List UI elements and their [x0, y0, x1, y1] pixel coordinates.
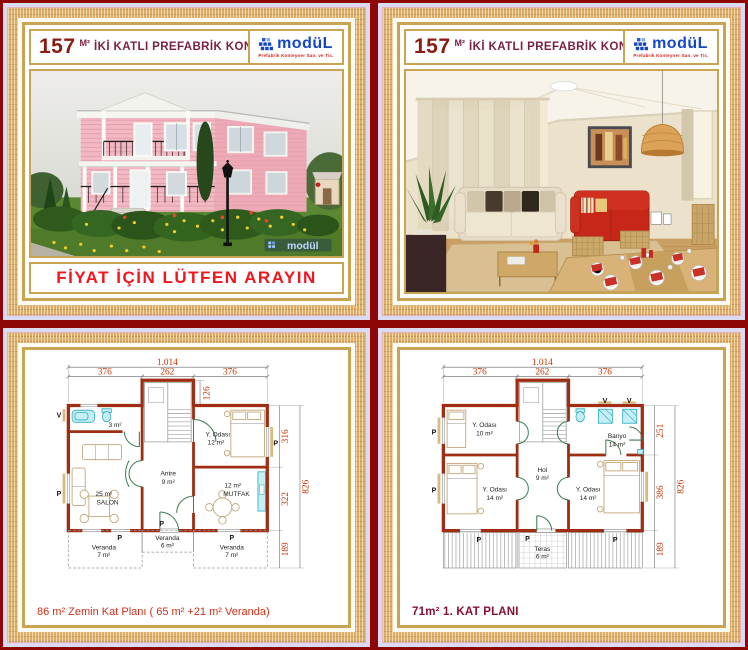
dim-upper: 316 — [281, 429, 291, 443]
house-illustration: modül — [31, 71, 342, 256]
quadrant-top-right: 157 M² İKİ KATLI PREFABRİK KONUT — [378, 3, 745, 320]
label-salon: SALON — [97, 499, 119, 506]
watermark-text: modül — [287, 241, 319, 252]
livingroom-illustration — [406, 71, 717, 292]
dim-veranda: 189 — [656, 542, 666, 556]
mark-p: P — [159, 521, 164, 528]
label-bedroom: Y. Odası — [206, 431, 231, 438]
dim-stair: 126 — [202, 386, 212, 400]
bedroom-furniture — [224, 410, 264, 457]
dim-right: 376 — [598, 368, 612, 378]
bedroom3-furniture — [597, 461, 639, 513]
label-veranda-left-area: 7 m² — [97, 552, 111, 559]
brand-logo: modüL Prefabrik Konteyner San. ve Tic. — [623, 31, 717, 63]
guard-hut — [312, 172, 342, 204]
label-veranda-right-area: 7 m² — [225, 552, 239, 559]
mark-p: P — [117, 535, 122, 542]
dim-total-width: 1.014 — [532, 358, 553, 368]
card-interior: 157 M² İKİ KATLI PREFABRİK KONUT — [397, 22, 726, 301]
dim-lower: 322 — [281, 492, 291, 506]
label-veranda-right: Veranda — [220, 544, 245, 551]
area-number: 157 — [414, 35, 451, 59]
dim-total-width: 1.014 — [157, 358, 178, 368]
right-window — [682, 109, 713, 200]
price-banner: FİYAT İÇİN LÜTFEN ARAYIN — [29, 262, 344, 294]
interior-photo — [404, 69, 719, 294]
label-kitchen: MUTFAK — [223, 491, 250, 498]
right-dimensions: 251 386 189 826 — [644, 405, 686, 568]
side-frames — [651, 212, 671, 224]
area-unit: M² — [455, 38, 466, 48]
mark-p: P — [525, 536, 530, 543]
modul-logo-icon — [634, 38, 649, 51]
header-title: İKİ KATLI PREFABRİK KONUT — [469, 41, 644, 53]
label-antre: Antre — [160, 471, 176, 478]
beige-sofa — [455, 187, 566, 240]
gold-frame: 157 M² İKİ KATLI PREFABRİK KONUT — [7, 7, 366, 316]
header-text: 157 M² İKİ KATLI PREFABRİK KONUT — [406, 31, 623, 63]
mark-v: V — [627, 398, 632, 405]
mark-p: P — [432, 487, 437, 494]
photo-watermark: modül — [264, 239, 331, 252]
card-plan-ground: 1.014 376 262 376 126 31 — [22, 347, 351, 628]
dim-total-height: 826 — [301, 479, 311, 493]
label-bath-area: 14 m² — [609, 442, 626, 449]
area-number: 157 — [39, 35, 76, 59]
prefab-house-poster: { "colors": { "frame_red": "#8e0606", "g… — [0, 0, 748, 650]
dim-veranda: 189 — [281, 542, 291, 556]
label-veranda-left: Veranda — [92, 544, 117, 551]
logo-wordmark: modüL — [652, 36, 708, 52]
gold-frame: 1.014 376 262 376 251 386 189 826 — [382, 332, 741, 643]
salon-furniture — [72, 445, 121, 523]
dim-right: 376 — [223, 368, 237, 378]
mark-v: V — [57, 413, 62, 420]
mark-v: V — [603, 398, 608, 405]
label-wc-area: 3 m² — [109, 422, 123, 429]
exterior-photo: modül — [29, 69, 344, 258]
first-floor-plan: 1.014 376 262 376 251 386 189 826 — [406, 356, 717, 619]
label-hall: Hol — [537, 467, 547, 474]
area-unit: M² — [80, 38, 91, 48]
label-bed2: Y. Odası — [482, 486, 507, 493]
label-bed3-area: 14 m² — [580, 495, 597, 502]
header-text: 157 M² İKİ KATLI PREFABRİK KONUT — [31, 31, 248, 63]
logo-tagline: Prefabrik Konteyner San. ve Tic. — [633, 53, 708, 58]
mark-p: P — [613, 537, 618, 544]
gold-frame: 1.014 376 262 376 126 31 — [7, 332, 366, 643]
dim-mid-band: 386 — [656, 485, 666, 499]
poster-grid: 157 M² İKİ KATLI PREFABRİK KONUT — [0, 0, 748, 650]
label-hall-area: 9 m² — [536, 475, 550, 482]
label-salon-area: 25 m² — [96, 491, 113, 498]
card-header: 157 M² İKİ KATLI PREFABRİK KONUT — [29, 29, 344, 65]
dim-total-height: 826 — [676, 479, 686, 493]
bedroom2-furniture — [447, 463, 483, 513]
mark-p: P — [229, 535, 234, 542]
header-title: İKİ KATLI PREFABRİK KONUT — [94, 41, 269, 53]
label-bath: Banyo — [608, 433, 627, 440]
ground-floor-plan: 1.014 376 262 376 126 31 — [31, 356, 342, 619]
mark-p: P — [57, 491, 62, 498]
dim-left: 376 — [98, 368, 112, 378]
dim-mid: 262 — [535, 368, 549, 378]
quadrant-plan-first: 1.014 376 262 376 251 386 189 826 — [378, 328, 745, 647]
label-veranda-mid-area: 6 m² — [161, 542, 175, 549]
label-antre-area: 9 m² — [162, 479, 176, 486]
wall-painting — [588, 126, 632, 168]
card-exterior: 157 M² İKİ KATLI PREFABRİK KONUT — [22, 22, 351, 301]
bedroom1-furniture — [447, 410, 466, 447]
quadrant-plan-ground: 1.014 376 262 376 126 31 — [3, 328, 370, 647]
staircase — [144, 383, 191, 442]
logo-tagline: Prefabrik Konteyner San. ve Tic. — [258, 53, 333, 58]
dim-left: 376 — [473, 368, 487, 378]
dim-upper: 251 — [656, 423, 666, 437]
label-bed3: Y. Odası — [576, 486, 601, 493]
modul-logo-icon — [259, 38, 274, 51]
card-plan-first: 1.014 376 262 376 251 386 189 826 — [397, 347, 726, 628]
mark-p: P — [432, 429, 437, 436]
wc-fixtures — [72, 409, 111, 423]
label-bed1: Y. Odası — [472, 422, 497, 429]
label-teras: Teras — [534, 546, 551, 553]
dim-mid: 262 — [160, 368, 174, 378]
label-bed2-area: 14 m² — [486, 495, 503, 502]
right-dimensions: 126 316 322 189 826 — [195, 380, 311, 568]
card-header: 157 M² İKİ KATLI PREFABRİK KONUT — [404, 29, 719, 65]
label-teras-area: 6 m² — [536, 554, 550, 561]
label-bed1-area: 10 m² — [476, 430, 493, 437]
label-kitchen-area: 12 m² — [224, 483, 241, 490]
staircase — [519, 383, 566, 442]
quadrant-top-left: 157 M² İKİ KATLI PREFABRİK KONUT — [3, 3, 370, 320]
mark-p: P — [477, 537, 482, 544]
label-bedroom-area: 12 m² — [208, 440, 225, 447]
plan-caption: 71m² 1. KAT PLANI — [412, 606, 519, 618]
plan-caption: 86 m² Zemin Kat Planı ( 65 m² +21 m² Ver… — [37, 606, 270, 618]
label-veranda-mid: Veranda — [155, 535, 180, 542]
gold-frame: 157 M² İKİ KATLI PREFABRİK KONUT — [382, 7, 741, 316]
mark-p: P — [273, 441, 278, 448]
brand-logo: modüL Prefabrik Konteyner San. ve Tic. — [248, 31, 342, 63]
logo-wordmark: modüL — [277, 36, 333, 52]
